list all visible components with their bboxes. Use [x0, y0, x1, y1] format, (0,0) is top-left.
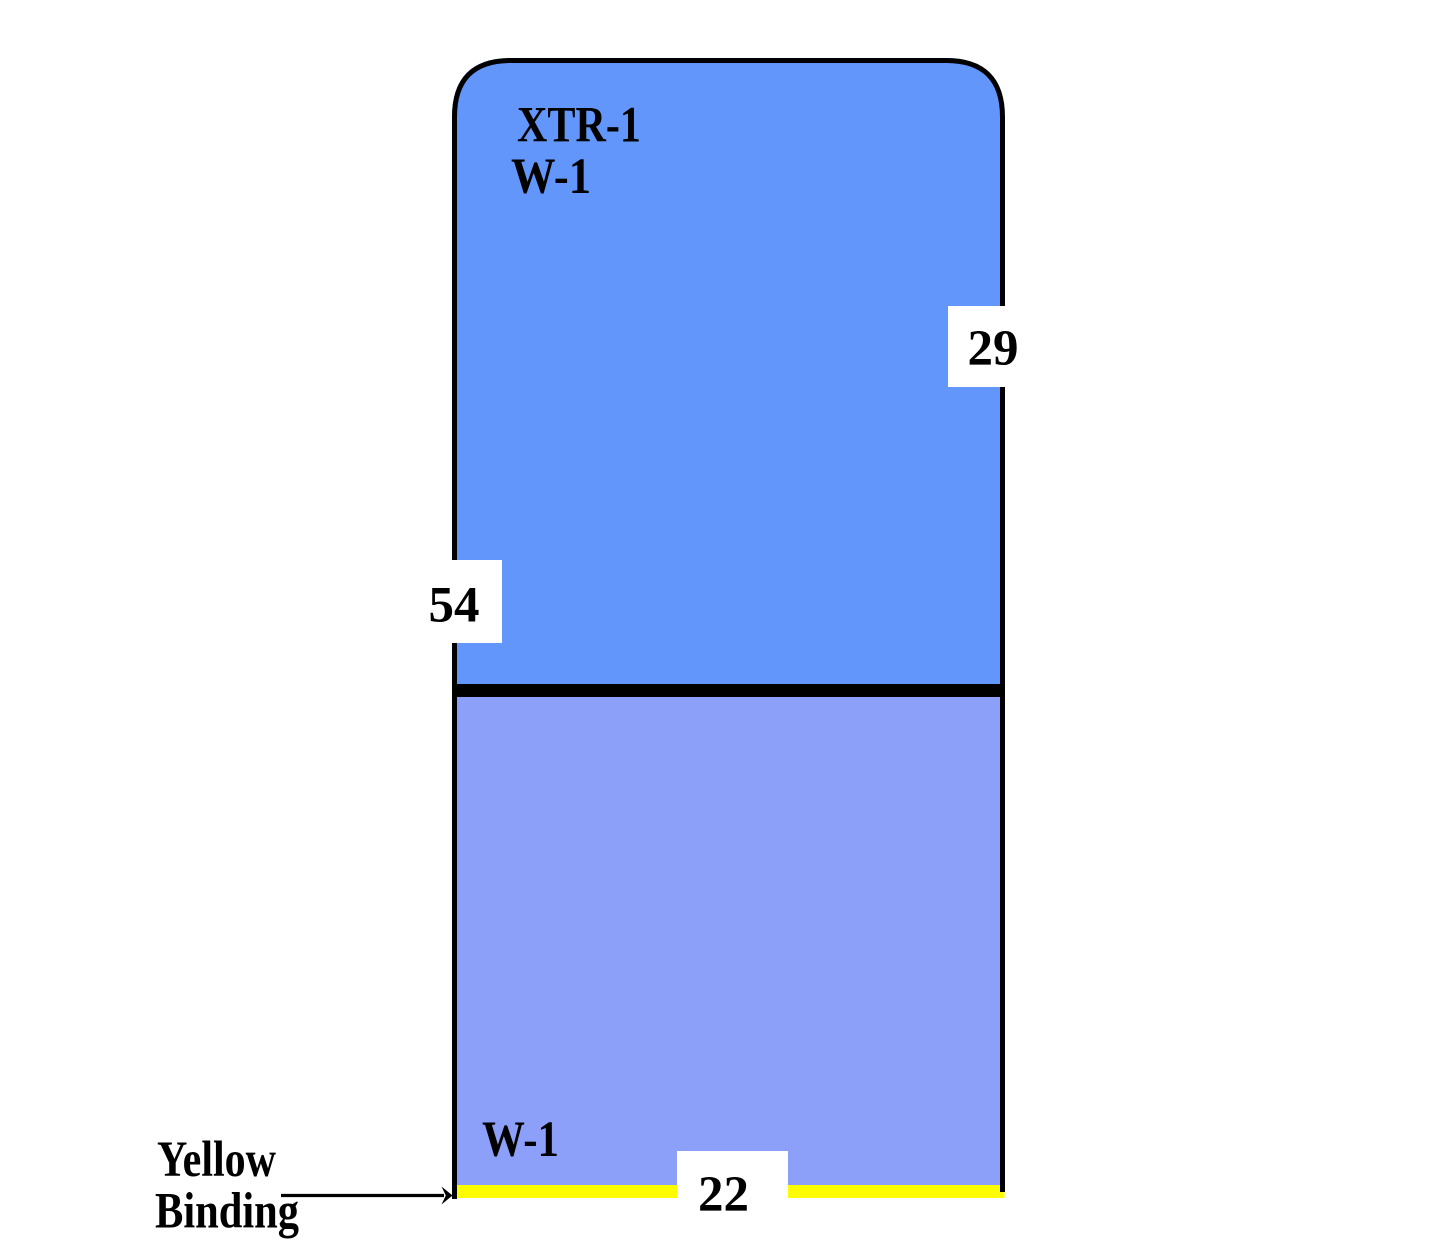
svg-text:Binding: Binding: [155, 1184, 299, 1240]
svg-text:XTR-1: XTR-1: [517, 98, 641, 154]
svg-text:Yellow: Yellow: [157, 1132, 276, 1188]
svg-text:W-1: W-1: [482, 1112, 559, 1168]
svg-text:22: 22: [698, 1167, 749, 1223]
svg-text:54: 54: [429, 578, 480, 634]
svg-text:29: 29: [968, 321, 1019, 377]
svg-text:W-1: W-1: [511, 149, 591, 205]
